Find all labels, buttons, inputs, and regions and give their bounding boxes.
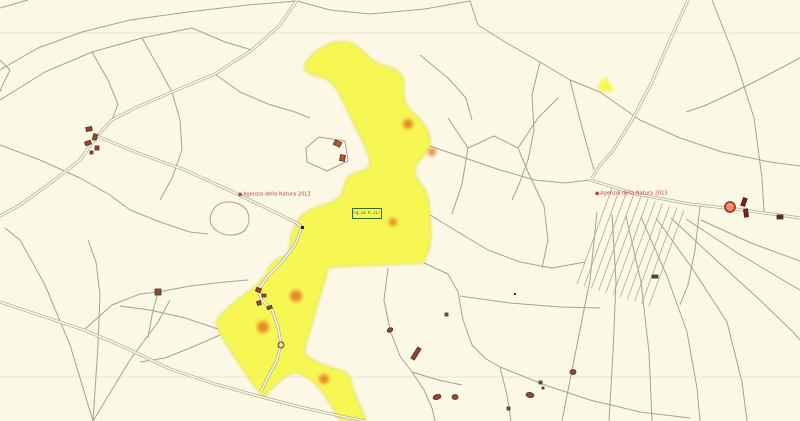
- parcel-line: [712, 0, 764, 212]
- building-marker: [452, 395, 458, 400]
- parcel-line: [92, 52, 118, 120]
- road-core: [0, 136, 97, 216]
- building-marker: [507, 407, 510, 410]
- parcel-line: [460, 296, 600, 308]
- building-marker: [432, 394, 441, 401]
- hatch-line: [591, 192, 626, 288]
- agency-watermark-left: ■Agenzia della Natura 2013: [238, 192, 311, 197]
- parcel-line: [160, 92, 182, 200]
- parcel-line: [0, 28, 192, 100]
- parcel-reference-text: Fg.13 P.117: [354, 211, 381, 215]
- building-marker: [526, 392, 535, 398]
- watermark-text: Agenzia della Natura 2013: [243, 192, 311, 197]
- parcel-line: [130, 210, 208, 234]
- orange-dot-marker: [389, 218, 397, 226]
- hatch-line: [577, 188, 612, 284]
- parcel-line: [512, 62, 540, 200]
- building-marker: [333, 140, 341, 147]
- building-marker: [652, 275, 658, 278]
- highlighted-parcels: [217, 41, 431, 421]
- parcel-outline: [210, 202, 249, 235]
- parcel-line: [0, 1, 297, 70]
- building-marker: [301, 226, 304, 229]
- parcel-line: [528, 172, 548, 268]
- building-marker: [257, 301, 262, 306]
- parcel-line: [88, 240, 100, 421]
- parcel-line: [518, 98, 558, 148]
- building-marker: [445, 313, 448, 316]
- parcel-line: [384, 268, 435, 421]
- building-marker: [777, 215, 783, 219]
- hatch-line: [606, 197, 641, 293]
- orange-dot-marker: [428, 148, 436, 156]
- building-marker: [92, 134, 97, 141]
- road-casing: [590, 180, 800, 218]
- parcel-outline: [306, 137, 348, 171]
- building-marker: [411, 347, 421, 360]
- parcel-line: [430, 215, 585, 268]
- building-marker: [570, 370, 576, 375]
- building-marker: [95, 146, 99, 150]
- building-marker: [86, 127, 93, 132]
- building-marker: [542, 387, 544, 389]
- building-marker: [340, 155, 346, 162]
- building-marker: [741, 198, 747, 207]
- building-markers: [84, 127, 783, 410]
- parcel-line: [215, 74, 310, 118]
- parcel-line: [142, 38, 172, 92]
- orange-dot-marker: [257, 321, 269, 333]
- cadastral-map: ■Agenzia della Natura 2013 ■Agenzia dell…: [0, 0, 800, 421]
- agency-logo-icon: ■: [238, 192, 242, 197]
- parcel-line: [5, 228, 93, 421]
- parcel-line: [93, 300, 170, 421]
- orange-dot-marker: [403, 119, 413, 129]
- parcel-reference-label: Fg.13 P.117: [352, 208, 382, 219]
- parcel-line: [120, 306, 218, 329]
- parcel-line: [0, 145, 130, 210]
- hatch-line: [613, 199, 648, 295]
- building-marker: [743, 209, 748, 217]
- agency-watermark-right: ■Agenzia della Natura 2013: [595, 191, 668, 196]
- parcel-line: [640, 120, 800, 166]
- hatch-line: [584, 190, 619, 286]
- hatch-line: [649, 210, 684, 306]
- parcel-line: [686, 58, 800, 112]
- parcel-line: [148, 292, 158, 338]
- red-circle-marker: [725, 202, 735, 212]
- building-marker: [262, 294, 266, 297]
- orange-dot-marker: [290, 290, 302, 302]
- parcel-line: [701, 220, 800, 261]
- building-marker: [386, 327, 393, 333]
- parcel-line: [424, 263, 500, 367]
- building-marker: [90, 151, 93, 154]
- hatch-line: [635, 206, 670, 302]
- building-marker: [514, 293, 516, 295]
- road-casing: [0, 136, 97, 216]
- parcel-line: [468, 136, 528, 172]
- parcel-line: [297, 1, 470, 14]
- agency-logo-icon: ■: [595, 191, 599, 196]
- watermark-text: Agenzia della Natura 2013: [600, 191, 668, 196]
- parcel-line: [140, 335, 220, 362]
- hatch-line: [620, 201, 655, 297]
- cadastral-map-canvas: [0, 0, 800, 421]
- building-marker: [155, 289, 161, 295]
- parcel-line: [430, 146, 590, 183]
- parcel-line: [470, 1, 640, 120]
- small-yellow-mark: [598, 78, 614, 92]
- parcel-line: [448, 118, 468, 214]
- orange-dot-marker: [319, 374, 329, 384]
- parcel-line: [420, 55, 472, 120]
- parcel-line: [570, 80, 594, 170]
- building-marker: [539, 381, 542, 384]
- hatch-line: [627, 203, 662, 299]
- parcel-line: [500, 367, 511, 421]
- parcel-line: [0, 0, 28, 8]
- parcel-line: [192, 28, 252, 50]
